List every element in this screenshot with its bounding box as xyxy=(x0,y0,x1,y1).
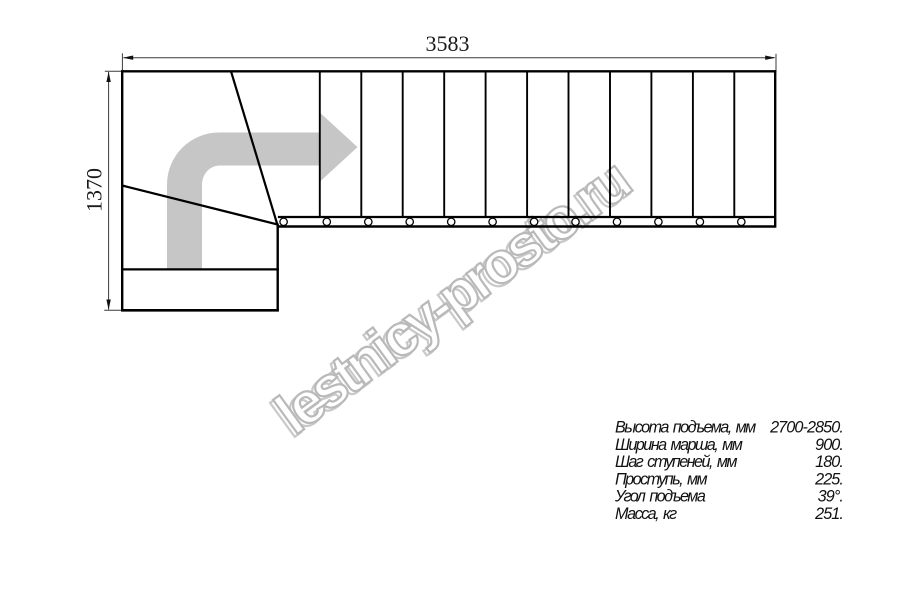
svg-text:Высота подъема, мм: Высота подъема, мм xyxy=(615,419,756,437)
svg-text:Шаг ступеней, мм: Шаг ступеней, мм xyxy=(615,453,737,471)
svg-text:180.: 180. xyxy=(815,453,843,471)
svg-text:900.: 900. xyxy=(815,436,843,454)
svg-text:Масса, кг: Масса, кг xyxy=(615,505,677,523)
svg-text:Проступь, мм: Проступь, мм xyxy=(615,470,708,488)
svg-text:3583: 3583 xyxy=(426,31,470,56)
svg-text:1370: 1370 xyxy=(82,168,107,212)
svg-text:Угол подъема: Угол подъема xyxy=(614,488,706,506)
svg-text:Ширина марша, мм: Ширина марша, мм xyxy=(615,436,743,454)
svg-text:39°.: 39°. xyxy=(818,488,843,506)
svg-text:225.: 225. xyxy=(814,470,843,488)
svg-text:2700-2850.: 2700-2850. xyxy=(769,419,843,437)
svg-text:251.: 251. xyxy=(814,505,843,523)
